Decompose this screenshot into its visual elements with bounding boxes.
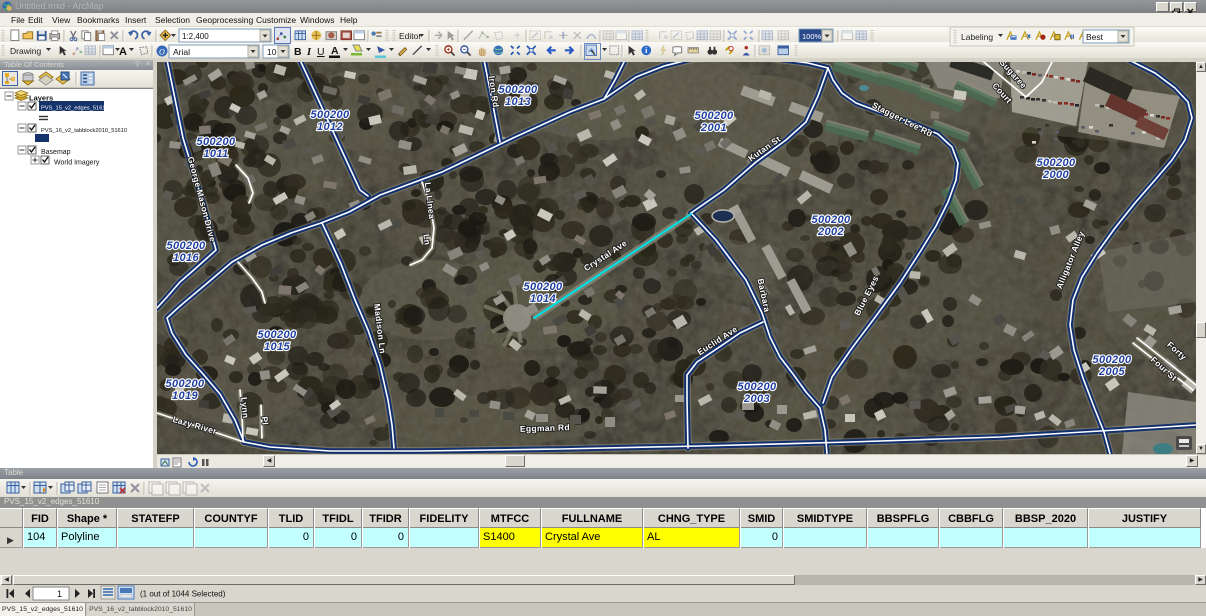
svg-text:A: A bbox=[331, 45, 339, 57]
svg-text:Ln: Ln bbox=[421, 234, 432, 246]
svg-text:B: B bbox=[294, 46, 302, 58]
svg-text:1015: 1015 bbox=[264, 341, 291, 353]
svg-text:500200: 500200 bbox=[257, 329, 297, 341]
svg-text:1: 1 bbox=[57, 589, 62, 599]
svg-text:2002: 2002 bbox=[817, 226, 844, 238]
svg-text:I: I bbox=[306, 47, 312, 58]
svg-text:500200: 500200 bbox=[165, 378, 205, 390]
svg-text:500200: 500200 bbox=[811, 214, 851, 226]
svg-text:O: O bbox=[159, 48, 165, 57]
svg-text:500200: 500200 bbox=[166, 240, 206, 252]
svg-text:500200: 500200 bbox=[196, 136, 236, 148]
svg-text:1014: 1014 bbox=[530, 293, 556, 305]
svg-text:1013: 1013 bbox=[505, 96, 531, 108]
svg-text:500200: 500200 bbox=[523, 281, 563, 293]
svg-text:500200: 500200 bbox=[1036, 157, 1076, 169]
svg-text:500200: 500200 bbox=[694, 110, 734, 122]
svg-text:2005: 2005 bbox=[1098, 366, 1126, 378]
svg-text:2001: 2001 bbox=[700, 122, 727, 134]
svg-text:Basemap: Basemap bbox=[41, 149, 71, 156]
svg-text:World Imagery: World Imagery bbox=[54, 160, 100, 167]
svg-text:PVS_16_v2_tabblock2010_51610: PVS_16_v2_tabblock2010_51610 bbox=[41, 128, 127, 134]
svg-text:1016: 1016 bbox=[173, 252, 200, 264]
svg-text:1019: 1019 bbox=[172, 390, 199, 402]
svg-text:2003: 2003 bbox=[743, 393, 770, 405]
svg-text:1012: 1012 bbox=[317, 121, 343, 133]
svg-text:Lynn: Lynn bbox=[239, 397, 251, 419]
svg-text:500200: 500200 bbox=[310, 109, 350, 121]
svg-text:(1 out of 1044 Selected): (1 out of 1044 Selected) bbox=[140, 590, 226, 599]
svg-text:Pl: Pl bbox=[260, 416, 271, 425]
svg-text:Eggman Rd: Eggman Rd bbox=[520, 422, 570, 434]
svg-text:500200: 500200 bbox=[737, 381, 777, 393]
svg-text:Arial: Arial bbox=[173, 47, 190, 57]
svg-text:500200: 500200 bbox=[1092, 354, 1132, 366]
svg-text:U: U bbox=[317, 46, 325, 58]
svg-text:500200: 500200 bbox=[498, 84, 538, 96]
svg-text:10: 10 bbox=[267, 47, 277, 57]
svg-text:PVS_15_v2_edges_51610: PVS_15_v2_edges_51610 bbox=[41, 106, 109, 112]
svg-text:1011: 1011 bbox=[203, 148, 228, 160]
svg-text:2000: 2000 bbox=[1042, 169, 1070, 181]
svg-text:Drawing: Drawing bbox=[10, 46, 41, 56]
svg-text:A: A bbox=[119, 46, 127, 58]
